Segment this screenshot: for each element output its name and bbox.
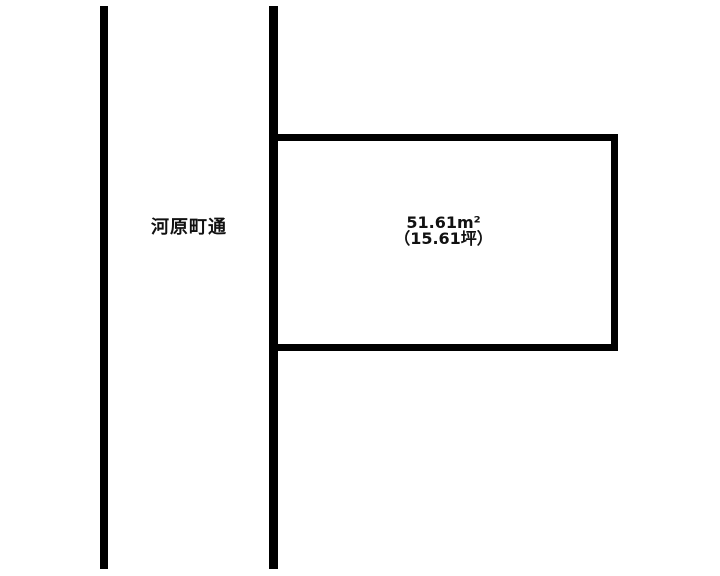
street-name-label: 河原町通 xyxy=(102,218,276,238)
parcel-area-label: 51.61m² （15.61坪） xyxy=(269,215,618,247)
parcel-area-tsubo: （15.61坪） xyxy=(269,231,618,247)
site-plan-canvas: 河原町通 51.61m² （15.61坪） xyxy=(0,0,720,576)
road-edge-line-left xyxy=(100,6,108,569)
